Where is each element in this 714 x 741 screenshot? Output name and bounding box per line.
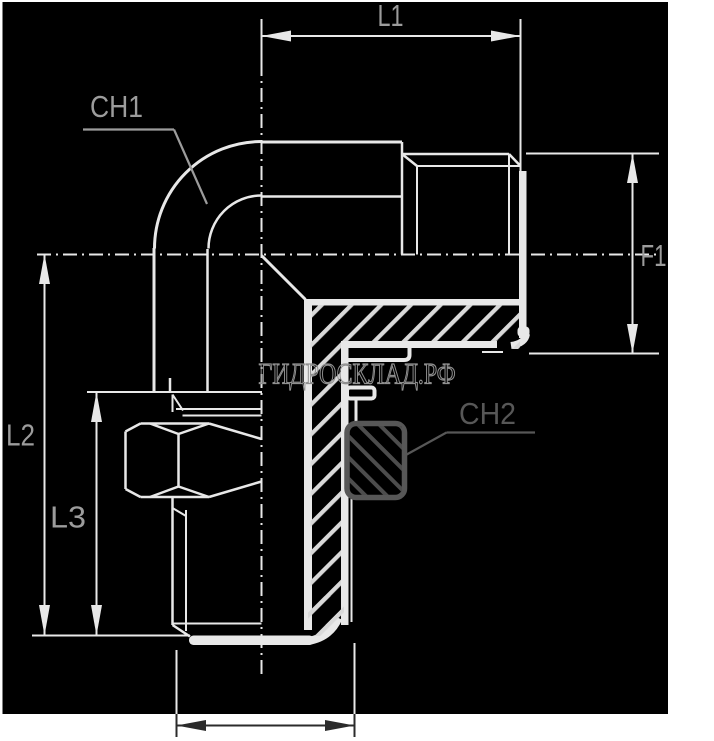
svg-text:L1: L1 bbox=[378, 0, 404, 33]
svg-text:L2: L2 bbox=[6, 418, 35, 453]
svg-text:ГИДРОСКЛАД.РФ: ГИДРОСКЛАД.РФ bbox=[259, 358, 456, 391]
svg-text:CH2: CH2 bbox=[459, 396, 516, 431]
svg-text:F1: F1 bbox=[641, 238, 667, 273]
svg-text:CH1: CH1 bbox=[90, 89, 143, 124]
svg-text:L3: L3 bbox=[50, 500, 86, 535]
